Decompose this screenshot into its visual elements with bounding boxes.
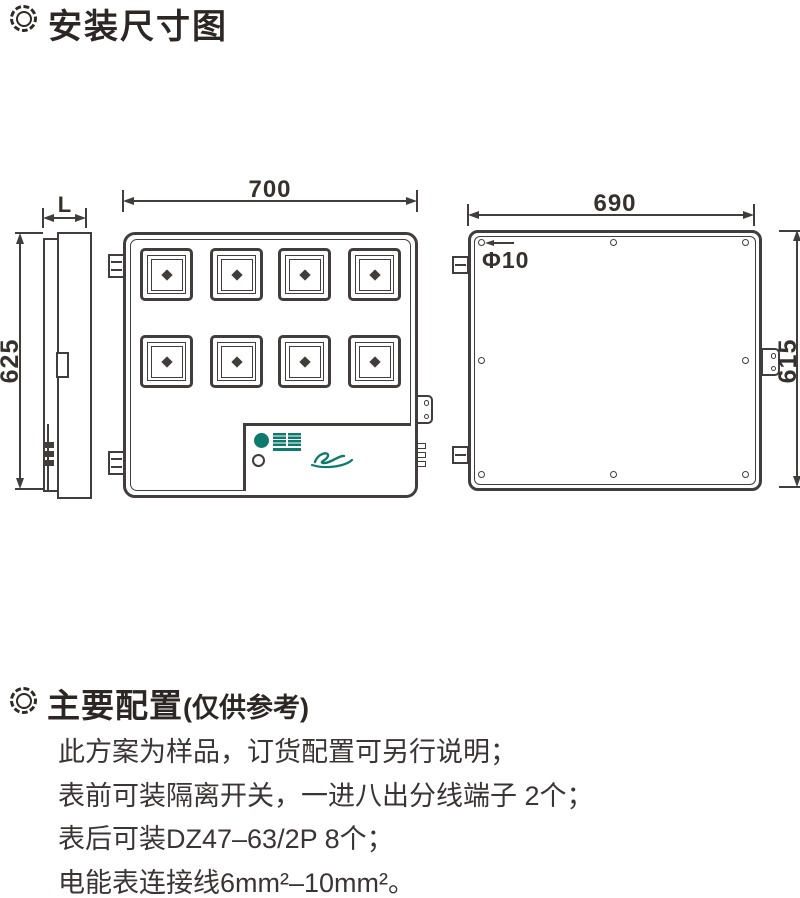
brand-logo-text: [273, 433, 286, 446]
mounting-hole: [742, 239, 749, 246]
mounting-hole: [478, 357, 485, 364]
mounting-tab: [452, 256, 469, 274]
leader-line: [492, 242, 514, 244]
arrow-down-icon: [16, 478, 24, 489]
screw-icon: [424, 400, 430, 406]
arrow-left-icon: [123, 197, 134, 205]
arrow-up-icon: [793, 230, 800, 241]
side-view-latch: [56, 352, 69, 378]
arrow-left-icon: [485, 240, 494, 246]
arrow-right-icon: [75, 214, 86, 222]
meter-window: [278, 335, 331, 388]
mounting-hole: [742, 471, 749, 478]
nameplate-panel: [243, 423, 411, 491]
section-bullet-icon: [10, 687, 37, 714]
arrow-down-icon: [793, 476, 800, 487]
mounting-hole: [478, 239, 485, 246]
meter-window: [348, 248, 401, 301]
config-note: 表后可装DZ47–63/2P 8个；: [58, 818, 594, 862]
mounting-hole: [610, 471, 617, 478]
side-view-hinge-knob: [44, 451, 54, 457]
mounting-hole: [610, 239, 617, 246]
config-notes: 此方案为样品，订货配置可另行说明； 表前可装隔离开关，一进八出分线端子 2个； …: [58, 731, 594, 898]
arrow-right-icon: [743, 211, 754, 219]
arrow-left-icon: [43, 214, 54, 222]
arrow-right-icon: [406, 197, 417, 205]
keyhole-icon: [252, 454, 265, 467]
screw-icon: [424, 414, 430, 420]
dimension-line-front-width: [132, 200, 408, 202]
dimension-line-back-height: [796, 241, 798, 477]
mounting-tab: [452, 446, 469, 464]
mounting-hole: [742, 357, 749, 364]
config-note: 此方案为样品，订货配置可另行说明；: [58, 731, 594, 775]
meter-window: [278, 248, 331, 301]
arrow-left-icon: [468, 211, 479, 219]
page: 安装尺寸图 L 625 700: [0, 0, 800, 898]
side-view-panel-line: [47, 424, 49, 490]
config-note: 电能表连接线6mm²–10mm²。: [58, 862, 594, 898]
brand-script-logo: [308, 449, 356, 471]
meter-window: [210, 248, 263, 301]
arrow-up-icon: [16, 233, 24, 244]
brand-logo-circle: [254, 433, 269, 448]
dimension-line-back-width: [477, 214, 745, 216]
meter-window: [140, 248, 193, 301]
brand-logo-text: [288, 433, 301, 446]
config-note: 表前可装隔离开关，一进八出分线端子 2个；: [58, 775, 594, 819]
config-heading: 主要配置(仅供参考): [47, 679, 309, 727]
config-title: 主要配置: [47, 679, 183, 727]
meter-window: [210, 335, 263, 388]
dimension-line-side-height: [19, 244, 21, 479]
section-bullet-icon: [10, 5, 37, 32]
config-subtitle: (仅供参考): [183, 686, 309, 725]
meter-window: [348, 335, 401, 388]
brand-logo-subtext: [273, 448, 301, 452]
page-title: 安装尺寸图: [48, 0, 228, 48]
hole-diameter-label: Φ10: [482, 247, 532, 274]
meter-window: [140, 335, 193, 388]
side-view-hinge-knob: [44, 442, 54, 448]
mounting-hole: [478, 471, 485, 478]
side-view-hinge-knob: [44, 460, 54, 466]
